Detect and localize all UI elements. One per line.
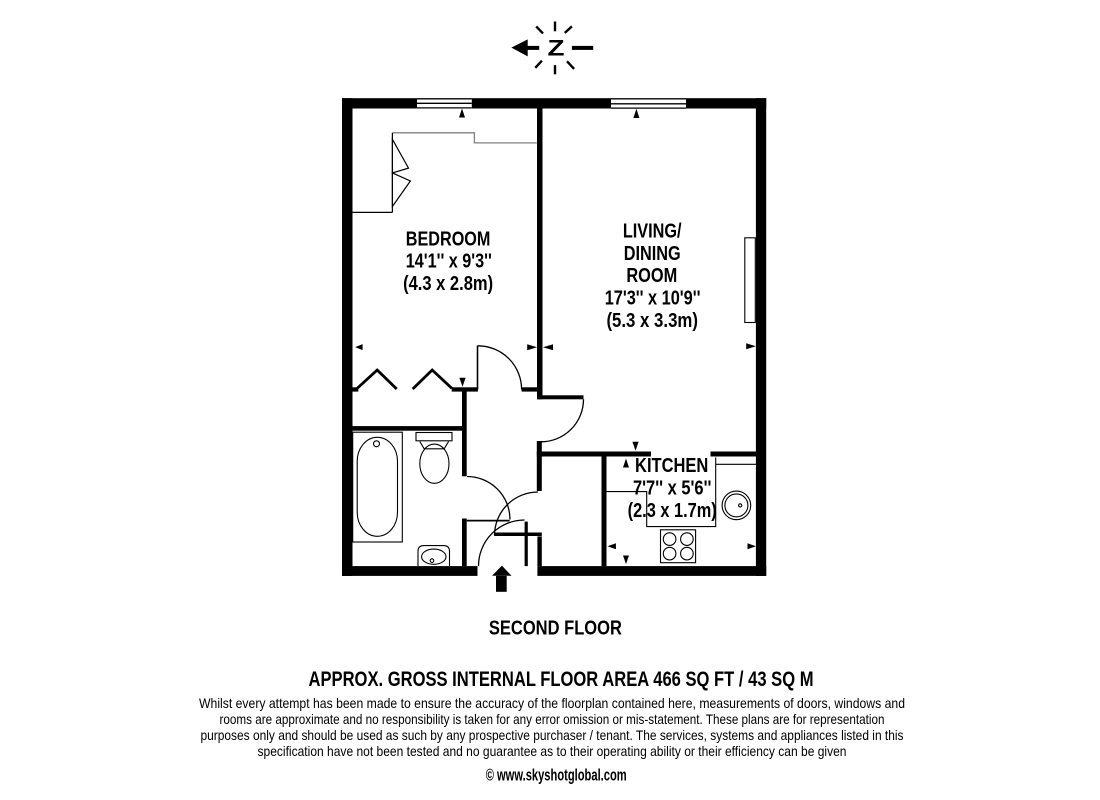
- svg-text:APPROX. GROSS INTERNAL FLOOR A: APPROX. GROSS INTERNAL FLOOR AREA 466 SQ…: [309, 668, 814, 691]
- svg-text:rooms are approximate and no r: rooms are approximate and no responsibil…: [220, 711, 885, 727]
- svg-text:SECOND FLOOR: SECOND FLOOR: [489, 617, 622, 640]
- svg-text:DINING: DINING: [624, 243, 681, 265]
- svg-text:KITCHEN: KITCHEN: [635, 455, 708, 477]
- svg-text:14'1'' x 9'3'': 14'1'' x 9'3'': [406, 251, 492, 273]
- svg-text:17'3'' x 10'9'': 17'3'' x 10'9'': [605, 288, 701, 310]
- svg-text:LIVING/: LIVING/: [623, 221, 682, 243]
- svg-text:BEDROOM: BEDROOM: [406, 228, 491, 250]
- svg-text:(4.3 x 2.8m): (4.3 x 2.8m): [403, 273, 493, 295]
- svg-text:Z: Z: [548, 36, 565, 61]
- svg-text:7'7'' x 5'6'': 7'7'' x 5'6'': [633, 478, 712, 500]
- svg-text:specification have not been te: specification have not been tested and n…: [258, 743, 847, 759]
- svg-text:(5.3 x 3.3m): (5.3 x 3.3m): [606, 310, 698, 332]
- svg-text:(2.3 x 1.7m): (2.3 x 1.7m): [628, 500, 717, 522]
- svg-text:ROOM: ROOM: [626, 265, 677, 287]
- svg-text:purposes only and should be u: purposes only and should be used as such…: [201, 727, 904, 743]
- svg-text:Whilst every attempt has been: Whilst every attempt has been made to en…: [199, 695, 905, 711]
- svg-text:© www.skyshotglobal.com: © www.skyshotglobal.com: [486, 766, 627, 785]
